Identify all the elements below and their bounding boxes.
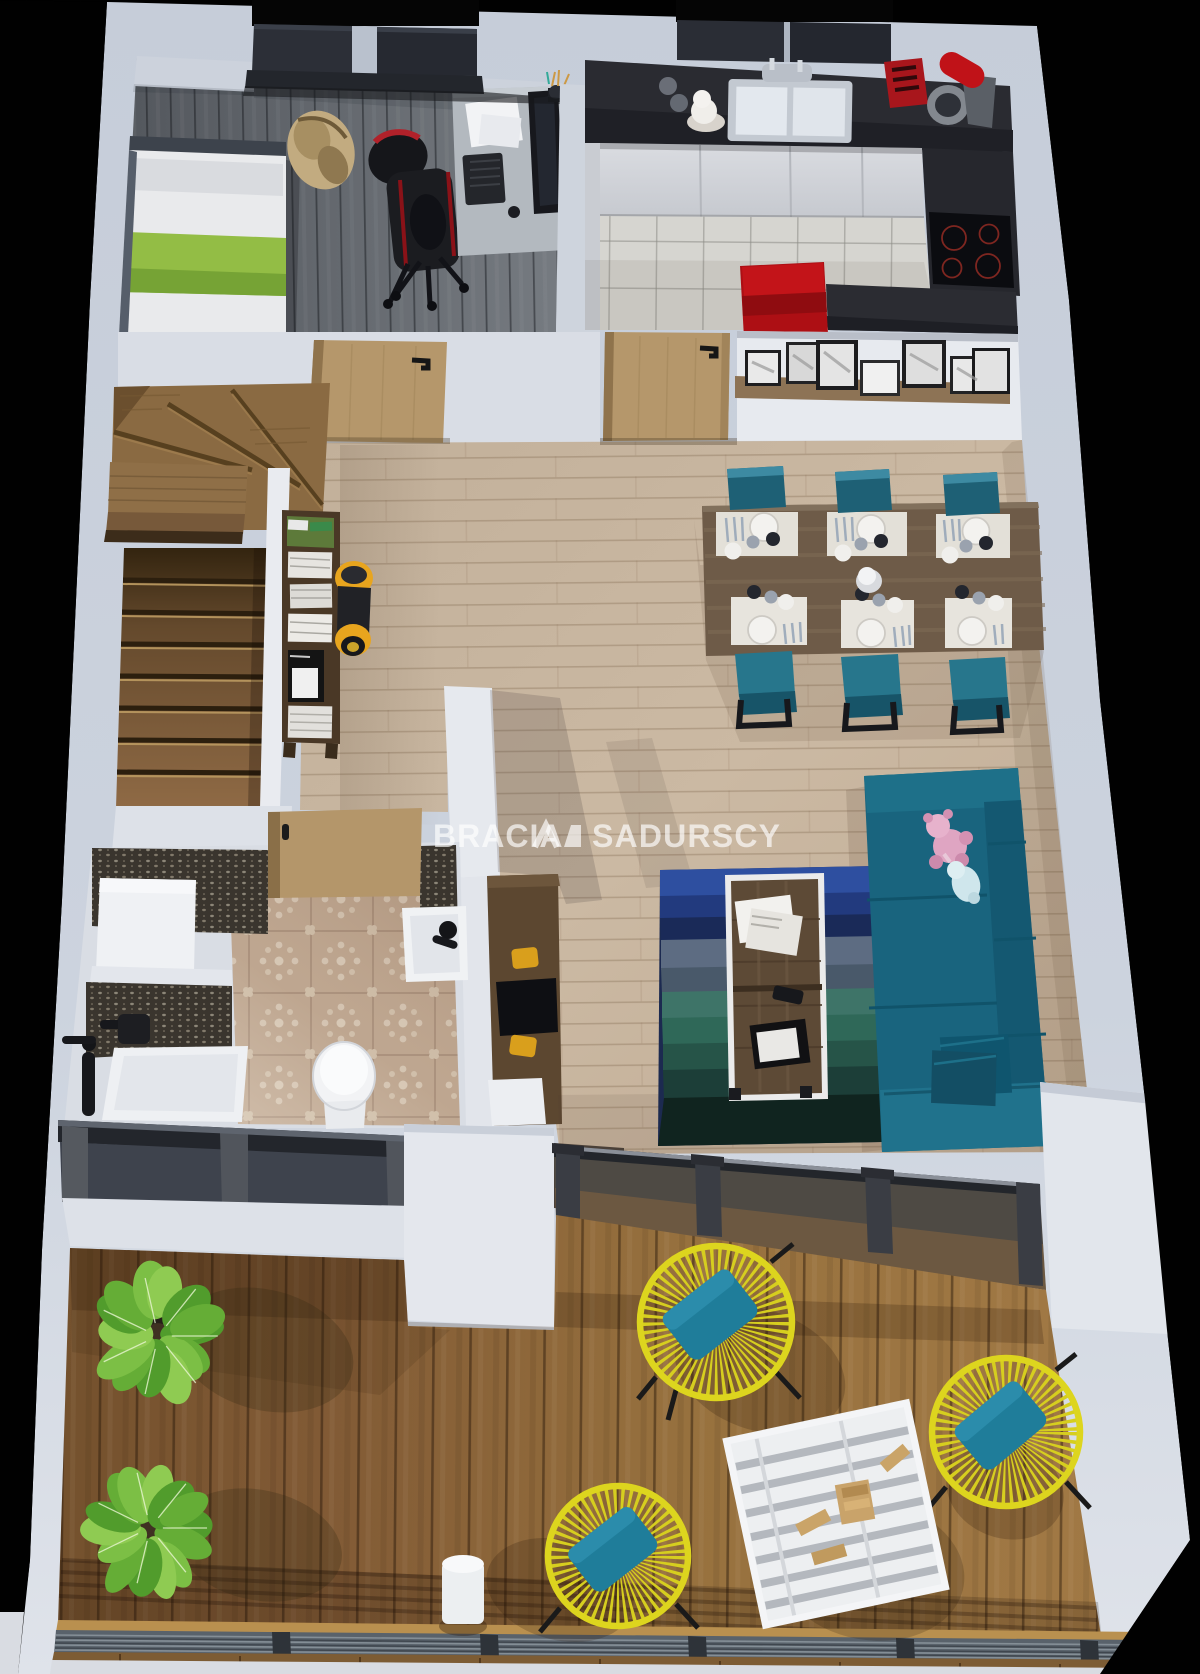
svg-text:SADURSCY: SADURSCY <box>592 818 781 854</box>
